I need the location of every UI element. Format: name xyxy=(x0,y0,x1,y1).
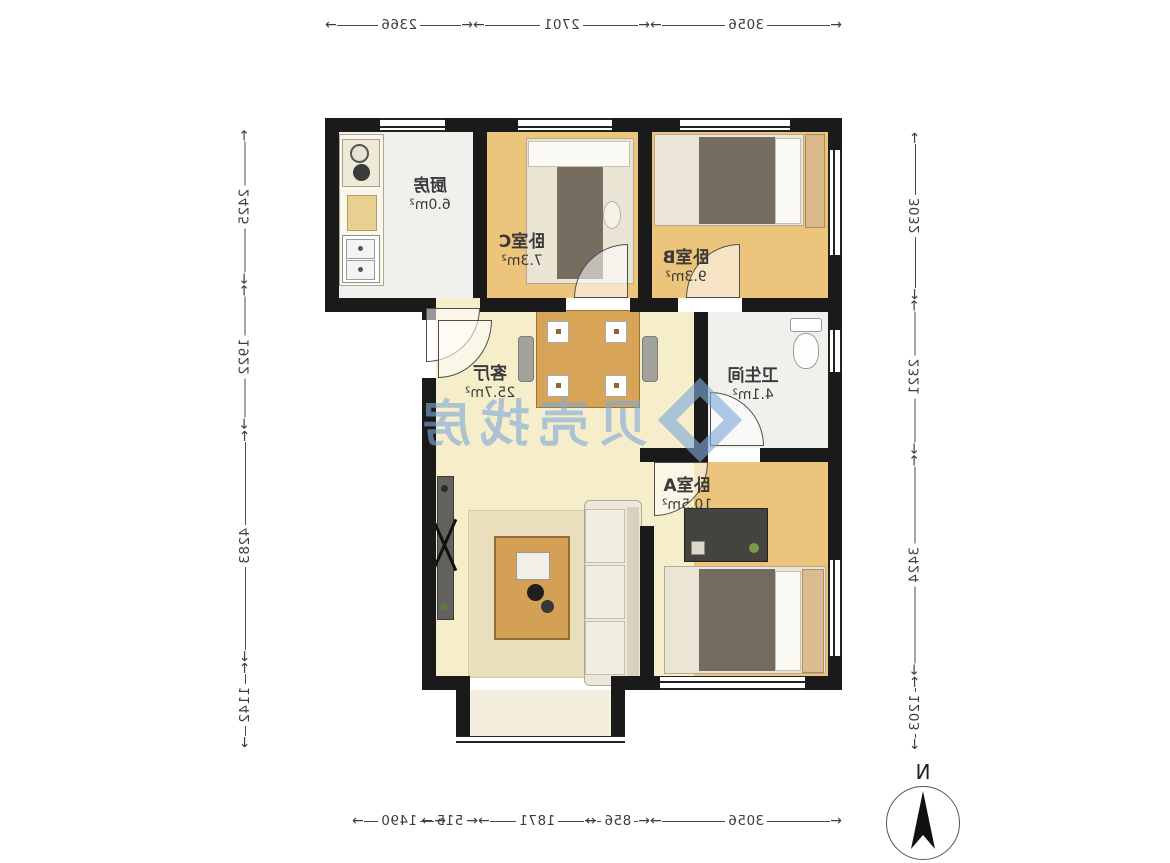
dim-bottom: ←515→ xyxy=(446,812,478,830)
dim-side: ←1922→ xyxy=(236,285,254,430)
bedroom-b-wardrobe xyxy=(805,134,825,228)
dim-side: ←2321→ xyxy=(906,300,924,455)
pillow xyxy=(775,571,801,671)
dim-side: ←1142→ xyxy=(236,662,254,748)
cutting-board xyxy=(347,195,377,231)
beike-logo-icon xyxy=(658,378,742,462)
bedroom-c-label: 卧室C 7.3m² xyxy=(480,232,564,271)
plant xyxy=(441,603,448,610)
dim-side: ←3424→ xyxy=(906,455,924,676)
balcony-floor xyxy=(470,690,611,738)
pillow xyxy=(528,141,630,167)
room-name: 厨房 xyxy=(390,176,470,197)
compass: N xyxy=(878,760,968,860)
dining-chair xyxy=(642,336,658,382)
window-bedroom-c xyxy=(518,118,612,132)
dim-top: ←2701→ xyxy=(473,16,650,34)
wall-c-kitchen xyxy=(473,132,487,298)
decor xyxy=(527,584,544,601)
window-bedroom-b xyxy=(680,118,790,132)
cushion xyxy=(585,509,625,563)
wall-mid-h xyxy=(630,298,678,312)
cushion xyxy=(585,621,625,675)
dim-side: ←1203→ xyxy=(906,676,924,748)
dim-bottom: ←856→ xyxy=(596,812,650,830)
burner xyxy=(350,144,369,163)
watermark: 贝壳找房 xyxy=(412,378,742,462)
balcony-post xyxy=(611,676,625,738)
bedroom-a-bed xyxy=(664,566,826,674)
wall-mid-h xyxy=(742,298,842,312)
dim-bottom: ←1490→ xyxy=(352,812,446,830)
plate xyxy=(547,321,569,343)
window-bedroom-b-side xyxy=(828,150,842,255)
balcony-window xyxy=(456,736,625,748)
dim-top: ←2366→ xyxy=(325,16,473,34)
mirrored-canvas: 厨房 6.0m² 卧室C 7.3m² 卧室B 9.3m² 客厅 25.7m² 卫… xyxy=(0,0,1170,863)
room-area: 7.3m² xyxy=(480,253,564,271)
sofa-back xyxy=(627,507,639,679)
wall-mid-h xyxy=(325,298,422,312)
bedroom-b-label: 卧室B 9.3m² xyxy=(644,248,728,287)
north-arrow-icon xyxy=(887,787,959,859)
room-area: 6.0m² xyxy=(390,197,470,215)
floor-plan-screenshot: 厨房 6.0m² 卧室C 7.3m² 卧室B 9.3m² 客厅 25.7m² 卫… xyxy=(0,0,1170,863)
basin xyxy=(346,260,375,280)
room-area: 10.5m² xyxy=(642,497,732,515)
toilet-tank xyxy=(790,318,822,332)
stove xyxy=(342,139,380,187)
wall-bathroom-bottom xyxy=(760,448,842,462)
sink xyxy=(342,235,380,283)
speaker xyxy=(441,485,448,492)
toilet-bowl xyxy=(793,333,819,369)
dim-top: ←3056→ xyxy=(650,16,842,34)
bedroom-a-cabinet xyxy=(684,508,768,562)
window-bedroom-a-side xyxy=(828,560,842,656)
wall-bedroom-a-right xyxy=(640,526,654,690)
wall-bottom xyxy=(800,676,842,690)
dim-bottom: ←1871→ xyxy=(478,812,596,830)
wall-bottom xyxy=(422,676,456,690)
room-name: 卧室C xyxy=(480,232,564,253)
wall-mid-h xyxy=(480,298,566,312)
coffee-table xyxy=(494,536,570,640)
cabinet-item xyxy=(691,541,705,555)
kitchen-counter xyxy=(339,134,384,286)
pillow xyxy=(775,138,801,224)
throw-pillow xyxy=(603,201,621,229)
room-name: 卧室A xyxy=(642,476,732,497)
blanket xyxy=(699,569,775,671)
dim-side: ←2425→ xyxy=(236,130,254,285)
sofa xyxy=(584,500,642,686)
wall-kitchen-right xyxy=(325,118,339,312)
balcony-post xyxy=(456,676,470,738)
dim-side: ←4283→ xyxy=(236,430,254,662)
headboard-wardrobe xyxy=(802,569,824,673)
cushion xyxy=(585,565,625,619)
bay-window-bedroom-a xyxy=(660,676,805,690)
bedroom-a-label: 卧室A 10.5m² xyxy=(642,476,732,515)
window-kitchen xyxy=(380,118,445,132)
plate xyxy=(605,321,627,343)
burner xyxy=(353,164,370,181)
basin xyxy=(346,239,375,259)
window-bathroom xyxy=(828,330,842,372)
north-label: N xyxy=(878,760,968,784)
dim-bottom: ←3056→ xyxy=(650,812,842,830)
tv-console xyxy=(437,476,454,620)
blanket xyxy=(699,137,775,224)
decor xyxy=(541,600,554,613)
plant xyxy=(749,543,759,553)
room-name: 卧室B xyxy=(644,248,728,269)
bedroom-b-bed xyxy=(654,134,804,226)
compass-circle xyxy=(886,786,960,860)
room-area: 9.3m² xyxy=(644,269,728,287)
tray xyxy=(516,552,550,580)
kitchen-label: 厨房 6.0m² xyxy=(390,176,470,215)
watermark-text: 贝壳找房 xyxy=(412,384,648,456)
wall-bottom xyxy=(625,676,660,690)
dim-side: ←3032→ xyxy=(906,132,924,300)
